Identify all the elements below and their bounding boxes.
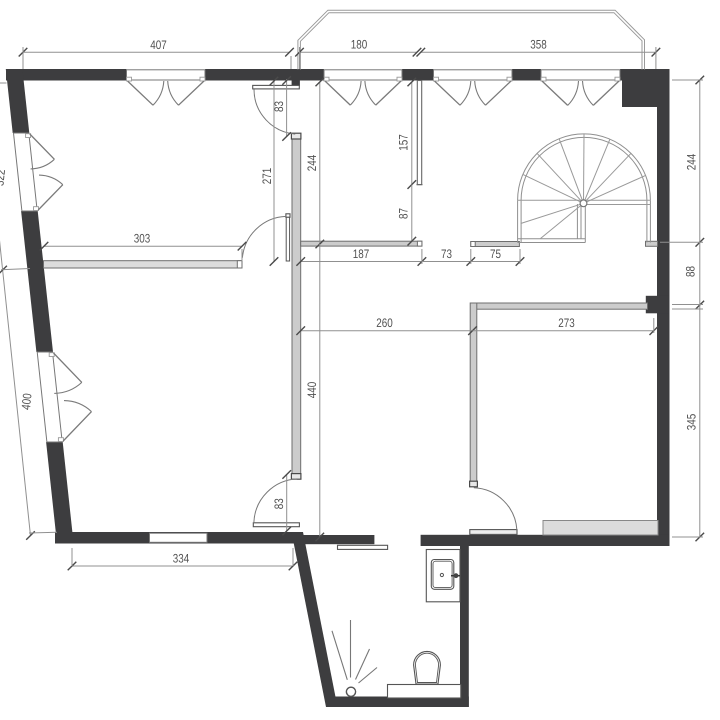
svg-text:345: 345 — [685, 414, 699, 431]
svg-text:271: 271 — [260, 168, 274, 185]
svg-text:157: 157 — [397, 134, 411, 151]
svg-text:244: 244 — [685, 154, 699, 171]
svg-text:407: 407 — [150, 38, 167, 52]
svg-text:87: 87 — [397, 208, 411, 219]
svg-text:187: 187 — [353, 247, 370, 261]
svg-text:180: 180 — [351, 38, 368, 52]
svg-text:83: 83 — [272, 498, 286, 509]
svg-text:75: 75 — [490, 247, 501, 261]
svg-text:303: 303 — [134, 232, 151, 246]
svg-text:334: 334 — [173, 551, 190, 565]
svg-text:88: 88 — [684, 266, 698, 277]
svg-text:73: 73 — [441, 247, 452, 261]
svg-text:244: 244 — [305, 155, 319, 172]
svg-text:358: 358 — [530, 38, 547, 52]
svg-text:440: 440 — [305, 382, 319, 399]
svg-text:83: 83 — [272, 101, 286, 112]
svg-text:400: 400 — [19, 393, 35, 411]
svg-text:260: 260 — [376, 316, 393, 330]
svg-text:273: 273 — [558, 316, 575, 330]
